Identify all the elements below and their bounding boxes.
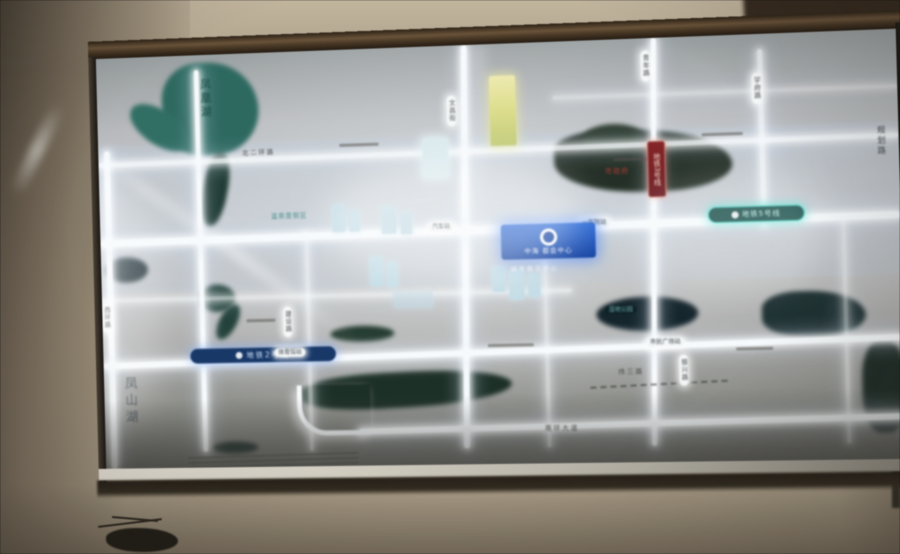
metro-line3-badge: 地铁3号线 (647, 141, 667, 198)
metro-station-pill: 体育馆站 (274, 348, 305, 358)
road-north-faint (552, 84, 897, 100)
map-display-board: 凤凰湖 凤山湖 温泉度假区 市政府 规划路 文昌街 青年路 学府路 振兴路 西环… (94, 12, 900, 494)
lake-name-label: 凤凰湖 (200, 78, 212, 120)
planned-road-dashed (590, 380, 727, 389)
landmark-yellow-tower (489, 75, 517, 146)
glass-glare-streak (469, 45, 487, 295)
photo-of-illuminated-map: 凤凰湖 凤山湖 温泉度假区 市政府 规划路 文昌街 青年路 学府路 振兴路 西环… (0, 0, 900, 554)
map-screen: 凤凰湖 凤山湖 温泉度假区 市政府 规划路 文昌街 青年路 学府路 振兴路 西环… (96, 29, 900, 469)
metro-station-pill: 市民广场站 (646, 337, 685, 347)
tiny-label-smudge (736, 347, 773, 351)
metro-logo-icon (236, 352, 243, 359)
road-name-pill: 文昌街 (447, 95, 456, 126)
road-name-pill: 建设路 (283, 307, 292, 337)
tiny-label-smudge (488, 343, 534, 347)
map-content: 凤凰湖 凤山湖 温泉度假区 市政府 规划路 文昌街 青年路 学府路 振兴路 西环… (96, 29, 900, 469)
road-name-text: 纬三路 (618, 365, 644, 376)
wetland-park-pill: 湿地公园 (604, 305, 637, 315)
road-name-pill: 学府路 (751, 72, 761, 103)
metro-line2-badge: 地铁2号线 (190, 346, 336, 364)
road-name-pill: 振兴路 (679, 354, 688, 385)
government-label: 市政府 (605, 166, 630, 177)
screen-bottom-fade (105, 387, 900, 469)
ledge-ornament (98, 520, 188, 554)
road-name-text: 北二环路 (242, 146, 275, 157)
tiny-label-smudge (246, 319, 275, 323)
lake-east (761, 290, 866, 338)
resort-label: 温泉度假区 (271, 209, 308, 220)
building-block (528, 273, 541, 297)
ornament-body (106, 528, 178, 552)
map-edge-label: 规划路 (876, 125, 885, 156)
building-block (393, 291, 433, 308)
road-name-pill: 青年路 (640, 50, 649, 81)
